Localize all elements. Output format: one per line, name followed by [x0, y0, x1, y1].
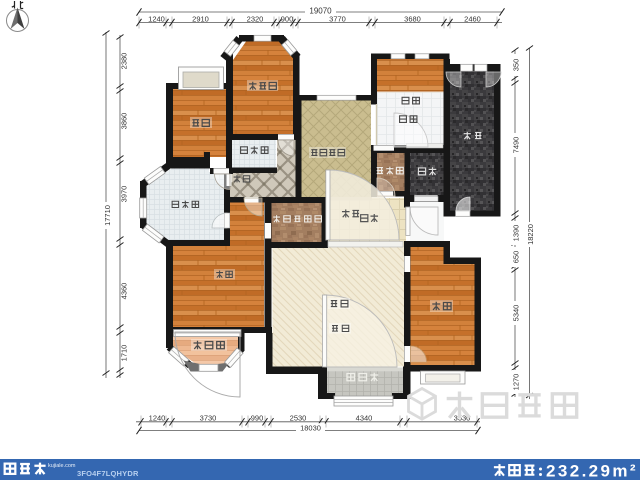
svg-text:900: 900	[281, 14, 294, 23]
svg-text:1710: 1710	[120, 345, 129, 362]
svg-text:3860: 3860	[120, 113, 129, 130]
svg-text:3680: 3680	[404, 14, 421, 23]
svg-text:18030: 18030	[300, 423, 321, 432]
svg-text:17710: 17710	[103, 205, 112, 226]
svg-text:4360: 4360	[120, 283, 129, 300]
svg-text:3730: 3730	[200, 413, 217, 422]
svg-text:kujiale.com: kujiale.com	[48, 463, 76, 469]
svg-text:3770: 3770	[329, 14, 346, 23]
svg-text:2530: 2530	[290, 413, 307, 422]
svg-text:3FO4F7LQHYDR: 3FO4F7LQHYDR	[77, 469, 139, 478]
svg-text:1390: 1390	[512, 225, 521, 242]
svg-text:2380: 2380	[120, 53, 129, 70]
svg-text:650: 650	[512, 251, 521, 264]
svg-text:1240: 1240	[149, 413, 166, 422]
svg-text:2460: 2460	[464, 14, 481, 23]
svg-text:1270: 1270	[512, 374, 521, 391]
svg-text:232.29m²: 232.29m²	[546, 462, 638, 480]
svg-text:5340: 5340	[512, 305, 521, 322]
svg-text:2320: 2320	[247, 14, 264, 23]
svg-text:1240: 1240	[148, 14, 165, 23]
svg-text:4340: 4340	[356, 413, 373, 422]
svg-text:350: 350	[512, 59, 521, 72]
svg-text:990: 990	[251, 413, 264, 422]
svg-text:7490: 7490	[512, 137, 521, 154]
svg-text:2910: 2910	[192, 14, 209, 23]
svg-text:3970: 3970	[120, 186, 129, 203]
svg-text:18220: 18220	[526, 224, 535, 245]
